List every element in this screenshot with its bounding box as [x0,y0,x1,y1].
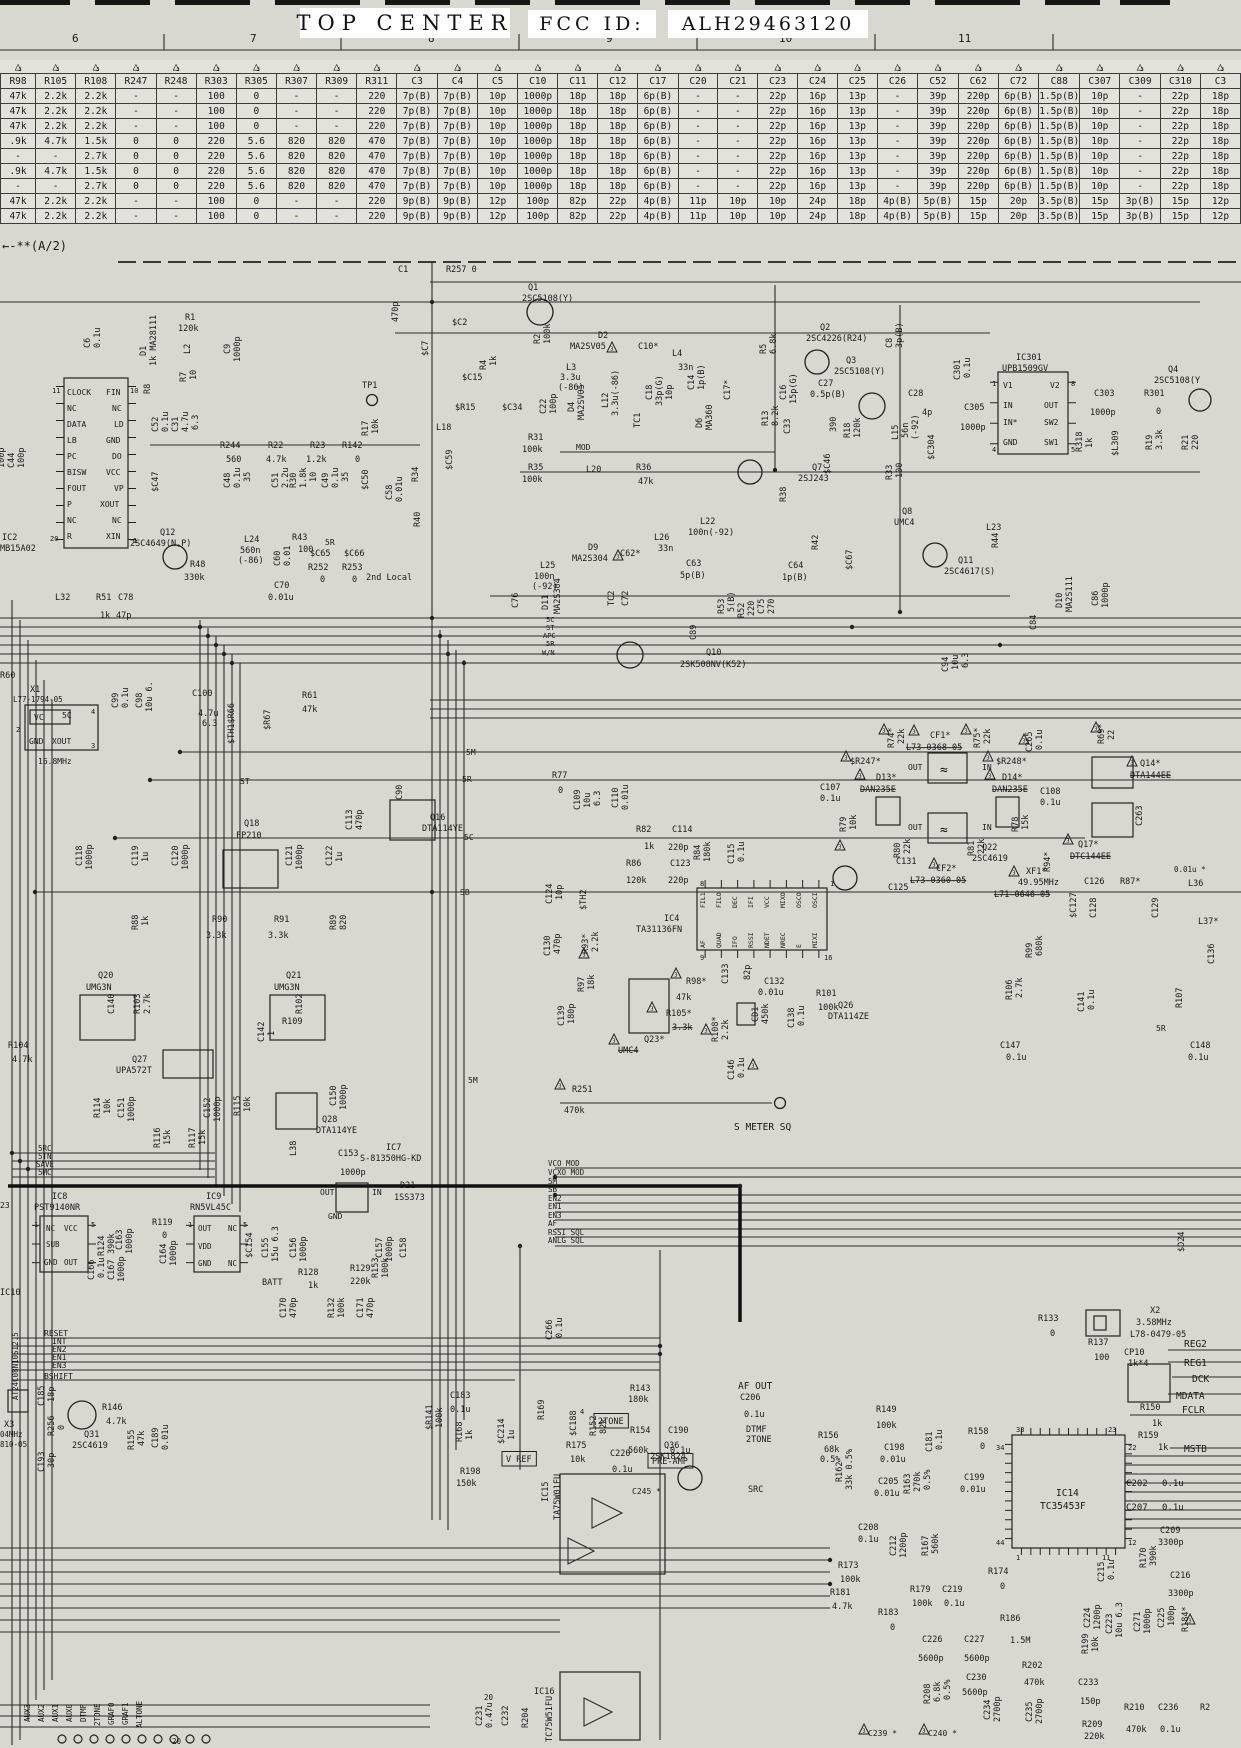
schematic-label: IC2 [2,533,17,543]
schematic-label: 0.1u [963,358,973,378]
schematic-label: VP [114,484,124,493]
schematic-label: R256 [47,1416,57,1436]
table-cell: 39p [918,149,958,164]
schematic-label: R2 [1200,1703,1210,1713]
table-cell: 100 [196,104,236,119]
wire-junction [998,643,1002,647]
table-cell: - [1,149,36,164]
schematic-label: 2SC4226(R24) [806,334,867,344]
schematic-label: 3.3u [560,373,580,383]
schematic-label: 220 [1191,435,1201,450]
table-cell: - [276,89,316,104]
revision-triangle-digit: 3 [964,729,967,735]
revision-mark: △3 [1160,60,1200,74]
schematic-label: 220k [1084,1732,1104,1742]
schematic-label: R4 [479,360,489,370]
table-cell: 0 [156,134,196,149]
table-cell: 6p(B) [998,119,1038,134]
schematic-label: R44 [991,533,1001,548]
schematic-label: $C66 [344,549,364,559]
schematic-label: C75 [757,599,767,614]
schematic-label: R251 [572,1085,592,1095]
schematic-label: C107 [820,783,840,793]
schematic-label: IN [982,823,992,832]
schematic-label: Q14* [1140,759,1160,769]
schematic-label: R116 [153,1128,163,1148]
schematic-label: C235 [1025,1702,1035,1722]
component-box [223,850,278,888]
schematic-label: 0.1u [612,1465,632,1475]
schematic-label: C123 [670,859,690,869]
schematic-label: L22 [700,517,715,527]
table-cell: 22p [1160,164,1200,179]
schematic-label: DCK [1192,1374,1209,1385]
schematic-label: 10k [103,1099,113,1114]
schematic-label: L2 [183,344,193,354]
schematic-label: 1p(B) [697,364,707,390]
table-cell: 5p(B) [918,209,958,224]
schematic-label: 10u [583,793,593,808]
schematic-label: 2SC5108(Y) [834,367,885,377]
table-cell: 15p [1080,194,1120,209]
schematic-label: 5 [91,1221,95,1229]
component-box [629,979,669,1033]
page-title: TOP CENTER [300,8,510,38]
table-cell: 12p [478,209,518,224]
schematic-label: 47k [638,477,653,487]
schematic-label: 22 [1128,1444,1136,1452]
schematic-label: REG1 [1184,1358,1207,1369]
table-row: .9k4.7k1.5k002205.68208204707p(B)7p(B)10… [1,134,1241,149]
schematic-label: 35 [243,472,253,482]
connector-pad [74,1735,82,1743]
schematic-label: 20 [50,535,58,543]
table-cell: 7p(B) [437,119,477,134]
table-cell: 470 [357,179,397,194]
table-cell: 12p [1200,194,1240,209]
schematic-label: 5p(B) [680,571,706,581]
revision-mark: △3 [1039,60,1080,74]
schematic-label: R23 [310,441,325,451]
schematic-label: X3 [4,1420,14,1430]
schematic-label: R115 [233,1096,243,1116]
schematic-label: 4p [922,408,932,418]
schematic-label: 180k [628,1395,648,1405]
table-cell: 220 [357,194,397,209]
table-cell: - [877,164,917,179]
schematic-label: R153 [371,1258,381,1278]
schematic-label: FCLR [1182,1405,1205,1416]
schematic-label: 0.1u [1162,1479,1184,1489]
component-box [1092,803,1133,837]
schematic-label: 5C [464,833,474,842]
table-cell: 1.5p(B) [1039,179,1080,194]
schematic-label: DAN235E [992,785,1028,795]
table-cell: 4p(B) [638,209,678,224]
schematic-label: $C2 [452,318,467,328]
table-cell: 5.6 [236,149,276,164]
schematic-label: R87* [1120,877,1140,887]
schematic-label: 0.1u [858,1535,878,1545]
table-cell: 16p [798,164,838,179]
table-column-header: C24 [798,74,838,89]
wire-junction [658,1352,662,1356]
schematic-label: L37* [1198,917,1218,927]
schematic-label: 0.5p(B) [810,390,846,400]
schematic-label: R132 [327,1298,337,1318]
schematic-label: IC9 [206,1192,221,1202]
schematic-label: R117 [188,1128,198,1148]
schematic-label: 100n(-92) [688,528,734,538]
schematic-label: $TH2 [579,890,589,910]
revision-mark: △3 [798,60,838,74]
schematic-label: 1000p [295,844,305,870]
table-cell: 1000p [518,89,558,104]
schematic-label: RSSI [747,932,755,948]
table-cell: 1.5k [76,134,116,149]
table-cell: 220p [958,104,998,119]
table-cell: 2.2k [36,104,76,119]
table-row: --2.7k002205.68208204707p(B)7p(B)10p1000… [1,179,1241,194]
schematic-label: 10 [309,472,319,482]
schematic-label: 2TONE [746,1435,772,1445]
schematic-label: 100p [1167,1606,1177,1626]
schematic-label: XIN [106,532,121,541]
schematic-label: 1000p [127,1096,137,1122]
schematic-label: C170 [279,1298,289,1318]
schematic-label: 560n [240,546,260,556]
schematic-label: $C34 [502,403,522,413]
wire-junction [26,1167,30,1171]
table-cell: 820 [317,149,357,164]
table-cell: 11p [678,209,718,224]
schematic-label: R150 [1140,1403,1160,1413]
schematic-label: L36 [1188,879,1203,889]
table-cell: 16p [798,89,838,104]
schematic-label: R119 [152,1218,172,1228]
revision-triangle-digit: 3 [751,1064,754,1070]
revision-mark: △3 [36,60,76,74]
table-cell: 18p [558,149,598,164]
schematic-label: R33 [885,465,895,480]
schematic-label: C230 [966,1673,986,1683]
schematic-label: C265 [1025,732,1035,752]
schematic-label: Q31 [84,1430,99,1440]
schematic-label: C223 [1105,1614,1115,1634]
schematic-label: 680k [1035,936,1045,956]
connector-pad [58,1735,66,1743]
schematic-label: 0.01u * [1174,865,1206,874]
schematic-label: 23 [1108,1426,1116,1434]
schematic-label: C1 [398,265,408,275]
table-cell: 1.5p(B) [1039,89,1080,104]
wire-junction [828,1558,832,1562]
schematic-label: C132 [764,977,784,987]
table-cell: 9p(B) [437,209,477,224]
schematic-label: R128 [298,1268,318,1278]
revision-triangle-digit: 3 [704,1029,707,1035]
schematic-label: Q7 [812,463,822,473]
schematic-label: 47p [116,611,131,621]
schematic-label: C232 [501,1706,511,1726]
table-cell: - [877,179,917,194]
table-cell: 18p [558,119,598,134]
schematic-label: (-92) [911,414,921,440]
table-cell: - [877,119,917,134]
schematic-label: R174 [988,1567,1008,1577]
schematic-label: 4.7k [106,1417,126,1427]
schematic-label: C140 [107,994,117,1014]
schematic-label: $R141 [425,1404,435,1430]
schematic-label: 220p [668,876,688,886]
schematic-label: 2TONE [93,1703,102,1726]
schematic-label: R155 [127,1430,137,1450]
schematic-label: 2SC5108(Y) [522,294,573,304]
schematic-label: C183 [450,1391,470,1401]
table-cell: 18p [558,104,598,119]
schematic-label: AT24C08N10SI2.5 [11,1332,20,1400]
schematic-label: 0 [980,1442,985,1452]
schematic-label: 0.1u [797,1006,807,1026]
schematic-label: 470k [1126,1725,1146,1735]
table-cell: 22p [758,134,798,149]
schematic-label: R43 [292,533,307,543]
wire-junction [828,1582,832,1586]
revision-mark: △3 [598,60,638,74]
schematic-label: IC14 [1056,1488,1079,1499]
schematic-label: 3.3k [206,931,226,941]
schematic-label: OSCI [811,892,819,908]
table-cell: 13p [837,104,877,119]
schematic-label: Q22 [982,843,997,853]
table-column-header: C21 [718,74,758,89]
revision-triangle-digit: 3 [922,1729,925,1735]
schematic-label: 1k [141,916,151,926]
schematic-label: C52 [151,417,161,432]
schematic-label: MIXO [779,892,787,908]
schematic-label: R21 [1181,435,1191,450]
schematic-label: 7 [250,32,257,45]
schematic-label: C114 [672,825,692,835]
table-cell: 39p [918,104,958,119]
schematic-label: Q10 [706,648,721,658]
schematic-label: 0.5% [923,1470,933,1490]
wires [0,34,1241,1745]
schematic-label: NREC [779,932,787,948]
schematic-label: L4 [672,349,682,359]
schematic-label: 180p [567,1004,577,1024]
schematic-label: IC8 [52,1192,67,1202]
schematic-label: 1k [1085,438,1095,448]
table-cell: 5.6 [236,179,276,194]
revision-mark: △3 [1080,60,1120,74]
schematic-label: E [795,944,803,948]
schematic-label: C208 [858,1523,878,1533]
schematic-label: C6 [83,338,93,348]
schematic-label: 0.1u [1035,730,1045,750]
schematic-label: 0.1u [1087,990,1097,1010]
table-cell: 2.2k [76,194,116,209]
schematic-label: C209 [1160,1526,1180,1536]
schematic-label: Q27 [132,1055,147,1065]
schematic-label: L78-0479-05 [1130,1330,1186,1340]
schematic-label: ST [240,777,250,786]
schematic-label: CLOCK [67,388,91,397]
schematic-label: $C188 [569,1410,579,1436]
wire-junction [198,625,202,629]
schematic-label: 0.1u [1160,1725,1180,1735]
revision-triangle-digit: 3 [858,774,861,780]
revision-triangle-digit: 3 [988,774,991,780]
schematic-label: 1000p [340,1168,366,1178]
schematic-label: 120k [178,324,198,334]
fcc-id-value: ALH29463120 [668,10,868,38]
schematic-label: D2 [598,331,608,341]
table-cell: 0 [156,179,196,194]
schematic-label: 1 [1016,1554,1020,1562]
schematic-label: 1 [830,880,834,888]
component-box [276,1093,317,1129]
schematic-label: MA2SV05 [577,384,587,420]
schematic-label: 33k 0.5% [845,1449,855,1490]
schematic-label: C136 [1207,944,1217,964]
schematic-label: C205 [878,1477,898,1487]
schematic-label: R94* [1043,852,1053,872]
schematic-label: C150 [329,1086,339,1106]
schematic-label: 3.58MHz [1136,1318,1172,1328]
schematic-label: 15k [1021,815,1031,830]
table-cell: 9p(B) [437,194,477,209]
table-cell: 5.6 [236,164,276,179]
schematic-label: C139 [557,1006,567,1026]
schematic-label: 470p [366,1298,376,1318]
schematic-label: L15 [891,425,901,440]
schematic-label: 6.3 [593,791,603,806]
table-cell: 13p [837,179,877,194]
schematic-label: VCO MOD [548,1159,580,1168]
schematic-label: C303 [1094,389,1114,399]
schematic-label: FILO [715,892,723,908]
wire-junction [113,836,117,840]
table-cell: 22p [598,194,638,209]
schematic-label: R169 [537,1400,547,1420]
schematic-label: LB [67,436,77,445]
schematic-label: FIL1 [699,892,707,908]
schematic-label: SUB [46,1240,60,1249]
test-point [367,395,378,406]
table-cell: 6p(B) [638,89,678,104]
table-cell: 10p [1080,179,1120,194]
transistor-symbol [923,543,947,567]
connector-pad [154,1735,162,1743]
schematic-label: OUT [198,1224,212,1233]
schematic-label: 0.1u [1162,1503,1184,1513]
connector-pad [186,1735,194,1743]
schematic-label: R18 [843,423,853,438]
table-cell: 7p(B) [397,134,437,149]
table-cell: - [1,179,36,194]
schematic-label: SRC [748,1485,763,1495]
schematic-label: C98 [135,693,145,708]
schematic-label: Q1 [528,283,538,293]
schematic-label: 1000p [169,1240,179,1266]
table-cell: 100p [518,209,558,224]
schematic-label: Q18 [244,819,259,829]
schematic-label: 2.2k [591,932,601,952]
table-cell: 82p [558,194,598,209]
table-cell: - [116,104,156,119]
schematic-label: R99 [1025,943,1035,958]
schematic-label: C99 [111,693,121,708]
schematic-label: C156 [289,1238,299,1258]
schematic-label: C51 [271,473,281,488]
table-cell: 820 [276,179,316,194]
schematic-label: C152 [203,1098,213,1118]
schematic-label: C129 [1151,898,1161,918]
schematic-label: 1000p [181,844,191,870]
schematic-label: XOUT [52,737,71,746]
wire-junction [738,1184,742,1188]
connector-pad [202,1735,210,1743]
schematic-label: R244 [220,441,240,451]
table-cell: 820 [276,164,316,179]
schematic-label: 8 [1071,380,1075,388]
table-cell: 16p [798,149,838,164]
schematic-label: C100 [192,689,212,699]
schematic-label: 100 [1094,1353,1109,1363]
schematic-label: C84 [1029,615,1039,630]
schematic-label: R154 [630,1426,650,1436]
table-cell: 22p [1160,179,1200,194]
schematic-label: 3300p [1158,1538,1184,1548]
schematic-label: 2TONE [598,1417,624,1427]
schematic-label: 0.47u [485,1702,495,1728]
schematic-label: $R67 [263,710,273,730]
table-cell: 39p [918,164,958,179]
table-cell: - [718,164,758,179]
schematic-label: 1k [100,611,110,621]
revision-mark: △3 [958,60,998,74]
table-cell: 5.6 [236,134,276,149]
schematic-label: IFI [747,896,755,908]
table-cell: 220p [958,149,998,164]
schematic-label: 100k [435,1408,445,1428]
schematic-label: 6.3 [961,653,971,668]
table-cell: 2.2k [76,119,116,134]
schematic-label: 5600p [962,1688,988,1698]
schematic-label: C16 [779,385,789,400]
schematic-label: R137 [1088,1338,1108,1348]
schematic-label: D4 [567,402,577,412]
schematic-label: 22k [983,729,993,744]
schematic-label: 10k [243,1097,253,1112]
schematic-label: R204 [521,1708,531,1728]
schematic-label: MIXI [811,932,819,948]
schematic-label: R48 [190,560,205,570]
table-column-header: C20 [678,74,718,89]
table-cell: 20p [998,194,1038,209]
schematic-label: 33n [678,363,693,373]
schematic-label: C151 [117,1098,127,1118]
table-column-header: R305 [236,74,276,89]
schematic-label: 100 [895,463,905,478]
schematic-label: R158 [968,1427,988,1437]
schematic-label: 0.1u [161,412,171,432]
revision-mark: △3 [156,60,196,74]
table-cell: 1.5p(B) [1039,164,1080,179]
table-cell: - [678,149,718,164]
table-cell: 7p(B) [437,149,477,164]
